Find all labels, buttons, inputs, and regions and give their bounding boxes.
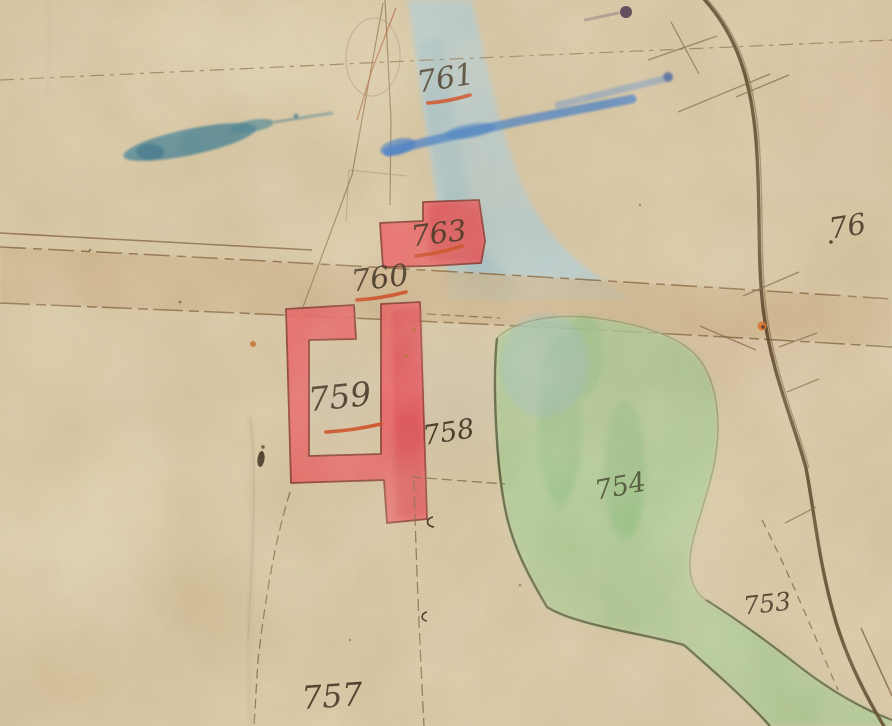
- map-canvas: 76176376075975875475375776: [0, 0, 892, 726]
- cadastral-map-image: 76176376075975875475375776: [0, 0, 892, 726]
- paper-grain-texture: [0, 0, 892, 726]
